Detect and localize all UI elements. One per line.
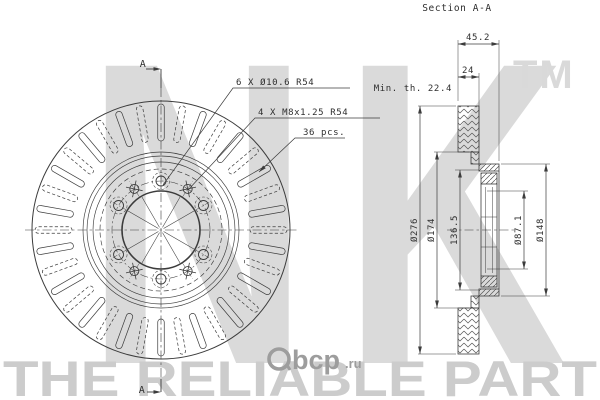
dim-disc-thickness: 24 [462, 66, 474, 76]
brake-disc-technical-drawing: NK TM THE RELIABLE PART bcp .ru Section … [0, 0, 600, 400]
dim-min-thickness: Min. th. 22.4 [374, 84, 452, 94]
dim-center-bore-diameter: Ø87.1 [513, 215, 524, 245]
dim-overall-width: 45.2 [466, 33, 490, 43]
dim-hat-inner-diameter: 136.5 [450, 215, 460, 245]
dim-hat-outer-diameter: Ø148 [535, 218, 546, 242]
drawing-canvas: NK TM THE RELIABLE PART bcp .ru Section … [0, 0, 600, 400]
section-marker-top: A [140, 59, 147, 70]
callout-threaded-holes: 4 X M8x1.25 R54 [258, 108, 348, 118]
abcp-site-label: bcp [292, 345, 340, 375]
section-marker-bottom: A [139, 385, 146, 396]
nk-brand-watermark: NK TM THE RELIABLE PART [3, 0, 599, 400]
trademark-label: TM [513, 53, 575, 97]
dim-outer-diameter: Ø276 [409, 218, 420, 242]
abcp-tld-label: .ru [345, 356, 362, 371]
section-title: Section A-A [422, 3, 492, 14]
callout-bolt-holes: 6 X Ø10.6 R54 [236, 77, 314, 88]
dim-ring-inner-diameter: Ø174 [426, 218, 437, 242]
callout-vane-count: 36 pcs. [303, 128, 345, 138]
